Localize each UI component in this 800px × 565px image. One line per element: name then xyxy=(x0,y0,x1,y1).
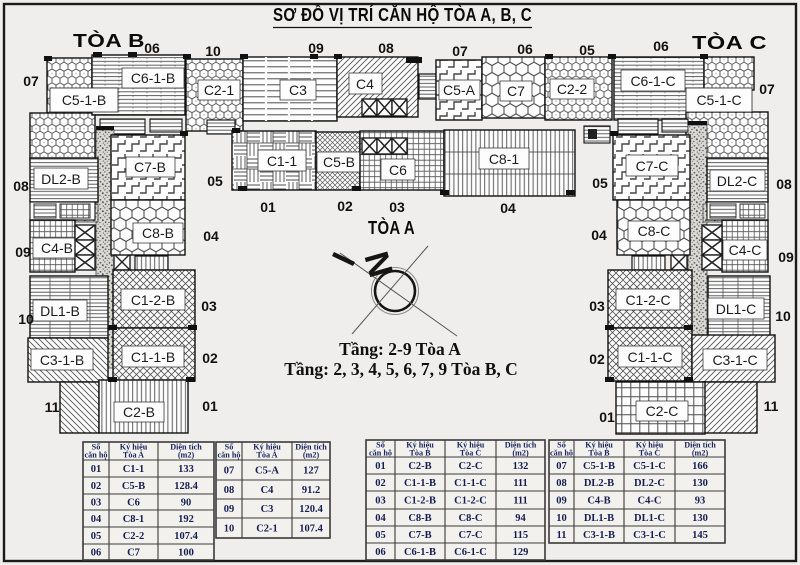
svg-text:C4-B: C4-B xyxy=(587,496,610,507)
svg-text:Tòa C: Tòa C xyxy=(639,449,661,458)
svg-text:Tầng: 2, 3, 4, 5, 6, 7, 9 Tòa: Tầng: 2, 3, 4, 5, 6, 7, 9 Tòa B, C xyxy=(284,359,518,379)
svg-text:C1-1-B: C1-1-B xyxy=(131,349,175,365)
svg-text:05: 05 xyxy=(579,42,595,58)
svg-text:C1-2-B: C1-2-B xyxy=(131,292,175,308)
svg-text:11: 11 xyxy=(557,530,567,541)
svg-text:128.4: 128.4 xyxy=(174,481,198,492)
svg-text:DL2-B: DL2-B xyxy=(584,478,614,489)
svg-text:C1-1-B: C1-1-B xyxy=(404,478,436,489)
svg-text:107.4: 107.4 xyxy=(299,524,323,535)
svg-text:DL1-C: DL1-C xyxy=(716,301,756,317)
svg-text:căn hộ: căn hộ xyxy=(369,449,392,458)
svg-text:07: 07 xyxy=(759,81,775,97)
svg-text:C4-C: C4-C xyxy=(638,496,662,507)
svg-text:C5-1-B: C5-1-B xyxy=(583,461,615,472)
svg-text:Tòa B: Tòa B xyxy=(588,449,610,458)
svg-text:C4: C4 xyxy=(356,76,374,92)
svg-text:DL1-B: DL1-B xyxy=(40,303,80,319)
svg-text:02: 02 xyxy=(91,481,102,492)
svg-text:C8-C: C8-C xyxy=(638,223,671,239)
svg-text:C5-1-C: C5-1-C xyxy=(633,461,666,472)
svg-text:C7: C7 xyxy=(507,83,525,99)
svg-text:Tòa C: Tòa C xyxy=(460,449,482,458)
svg-text:(m2): (m2) xyxy=(303,451,320,460)
svg-text:C2-C: C2-C xyxy=(459,461,483,472)
svg-text:C7-C: C7-C xyxy=(459,530,483,541)
svg-text:C2-1: C2-1 xyxy=(256,524,278,535)
svg-text:127: 127 xyxy=(303,466,319,477)
svg-text:130: 130 xyxy=(692,513,708,524)
svg-text:C1-2-C: C1-2-C xyxy=(625,292,670,308)
svg-text:C8-1: C8-1 xyxy=(489,151,520,167)
svg-text:C2-2: C2-2 xyxy=(123,531,145,542)
svg-text:04: 04 xyxy=(591,227,607,243)
svg-text:06: 06 xyxy=(653,38,669,54)
svg-text:C7-C: C7-C xyxy=(636,158,669,174)
svg-text:11: 11 xyxy=(45,399,60,415)
svg-text:C2-C: C2-C xyxy=(646,403,679,419)
svg-text:C6-1-C: C6-1-C xyxy=(630,73,675,89)
svg-text:02: 02 xyxy=(202,350,218,366)
svg-text:C3-1-B: C3-1-B xyxy=(40,352,84,368)
svg-text:C2-2: C2-2 xyxy=(557,81,588,97)
svg-text:C5-1-B: C5-1-B xyxy=(62,92,106,108)
svg-text:DL2-C: DL2-C xyxy=(634,478,665,489)
svg-text:căn hộ: căn hộ xyxy=(550,449,573,458)
svg-text:02: 02 xyxy=(375,478,386,489)
svg-text:C4: C4 xyxy=(261,485,275,496)
svg-text:09: 09 xyxy=(556,496,567,507)
svg-text:C8-1: C8-1 xyxy=(123,514,145,525)
svg-text:03: 03 xyxy=(375,496,386,507)
svg-text:132: 132 xyxy=(513,461,529,472)
svg-text:C5-B: C5-B xyxy=(122,481,145,492)
svg-text:DL1-B: DL1-B xyxy=(584,513,614,524)
svg-text:07: 07 xyxy=(556,461,567,472)
svg-text:SƠ ĐỒ VỊ TRÍ CĂN HỘ TÒA A, B,: SƠ ĐỒ VỊ TRÍ CĂN HỘ TÒA A, B, C xyxy=(273,4,532,25)
svg-text:09: 09 xyxy=(15,244,31,260)
svg-text:C1-2-B: C1-2-B xyxy=(404,496,436,507)
svg-text:133: 133 xyxy=(178,464,194,475)
svg-text:10: 10 xyxy=(775,308,791,324)
svg-text:10: 10 xyxy=(224,524,235,535)
svg-text:111: 111 xyxy=(513,478,528,489)
svg-text:C5-A: C5-A xyxy=(443,82,476,98)
svg-text:C8-C: C8-C xyxy=(459,513,483,524)
svg-text:06: 06 xyxy=(91,548,102,559)
svg-text:Tòa A: Tòa A xyxy=(123,451,144,460)
svg-text:TÒA A: TÒA A xyxy=(368,217,415,238)
svg-text:100: 100 xyxy=(178,548,194,559)
svg-text:107.4: 107.4 xyxy=(174,531,198,542)
svg-text:06: 06 xyxy=(517,41,533,57)
svg-text:10: 10 xyxy=(556,513,567,524)
svg-text:03: 03 xyxy=(589,298,605,314)
svg-text:C7-B: C7-B xyxy=(408,530,431,541)
svg-text:05: 05 xyxy=(207,173,223,189)
svg-text:03: 03 xyxy=(91,498,102,509)
svg-text:07: 07 xyxy=(452,43,468,59)
svg-text:03: 03 xyxy=(389,199,405,215)
svg-text:04: 04 xyxy=(91,514,102,525)
svg-text:C3-1-B: C3-1-B xyxy=(583,530,615,541)
svg-text:05: 05 xyxy=(592,175,608,191)
svg-text:11: 11 xyxy=(764,398,779,414)
svg-text:01: 01 xyxy=(260,199,276,215)
svg-text:07: 07 xyxy=(224,466,235,477)
svg-text:C5-1-C: C5-1-C xyxy=(696,92,741,108)
svg-text:04: 04 xyxy=(203,228,219,244)
svg-text:05: 05 xyxy=(91,531,102,542)
svg-text:(m2): (m2) xyxy=(692,449,709,458)
svg-text:10: 10 xyxy=(205,43,221,59)
svg-text:C6-1-B: C6-1-B xyxy=(404,547,436,558)
svg-text:06: 06 xyxy=(375,547,386,558)
svg-text:111: 111 xyxy=(513,496,528,507)
svg-text:90: 90 xyxy=(181,498,192,509)
svg-text:C8-B: C8-B xyxy=(408,513,431,524)
svg-text:08: 08 xyxy=(378,40,394,56)
svg-text:C3-1-C: C3-1-C xyxy=(633,530,666,541)
svg-text:06: 06 xyxy=(144,40,160,56)
svg-text:Tòa A: Tòa A xyxy=(256,451,277,460)
svg-text:C1-2-C: C1-2-C xyxy=(454,496,487,507)
svg-text:C1-1-C: C1-1-C xyxy=(627,349,672,365)
svg-text:166: 166 xyxy=(692,461,708,472)
svg-text:04: 04 xyxy=(375,513,386,524)
svg-text:căn hộ: căn hộ xyxy=(85,451,108,460)
svg-text:93: 93 xyxy=(695,496,706,507)
svg-text:09: 09 xyxy=(778,249,794,265)
svg-text:C6-1-C: C6-1-C xyxy=(454,547,487,558)
svg-text:08: 08 xyxy=(13,178,29,194)
svg-text:02: 02 xyxy=(337,198,353,214)
svg-text:(m2): (m2) xyxy=(512,449,529,458)
svg-text:08: 08 xyxy=(556,478,567,489)
svg-text:C7: C7 xyxy=(127,548,140,559)
svg-text:C3: C3 xyxy=(261,504,274,515)
svg-text:C2-B: C2-B xyxy=(408,461,431,472)
svg-text:(m2): (m2) xyxy=(178,451,195,460)
svg-text:DL2-C: DL2-C xyxy=(717,173,757,189)
svg-text:TÒA C: TÒA C xyxy=(692,32,767,53)
svg-text:Tòa B: Tòa B xyxy=(409,449,431,458)
svg-text:C3: C3 xyxy=(289,82,307,98)
svg-text:C1-1-C: C1-1-C xyxy=(454,478,487,489)
svg-text:115: 115 xyxy=(513,530,528,541)
svg-text:C1-1: C1-1 xyxy=(123,464,145,475)
svg-text:DL1-C: DL1-C xyxy=(634,513,665,524)
svg-text:09: 09 xyxy=(224,504,235,515)
svg-text:C6: C6 xyxy=(389,162,407,178)
svg-text:C2-B: C2-B xyxy=(123,404,155,420)
svg-text:C1-1: C1-1 xyxy=(267,153,298,169)
svg-text:căn hộ: căn hộ xyxy=(218,451,241,460)
svg-text:120.4: 120.4 xyxy=(299,504,323,515)
svg-text:08: 08 xyxy=(776,176,792,192)
svg-text:05: 05 xyxy=(375,530,386,541)
svg-text:192: 192 xyxy=(178,514,194,525)
svg-text:C6-1-B: C6-1-B xyxy=(131,70,175,86)
svg-text:01: 01 xyxy=(375,461,386,472)
svg-text:DL2-B: DL2-B xyxy=(41,171,81,187)
svg-text:08: 08 xyxy=(224,485,235,496)
svg-text:C4-C: C4-C xyxy=(729,242,762,258)
svg-text:01: 01 xyxy=(91,464,102,475)
svg-text:129: 129 xyxy=(513,547,529,558)
svg-text:C7-B: C7-B xyxy=(134,159,166,175)
svg-text:09: 09 xyxy=(308,40,324,56)
svg-text:C3-1-C: C3-1-C xyxy=(712,352,757,368)
svg-text:10: 10 xyxy=(18,311,34,327)
svg-text:C4-B: C4-B xyxy=(41,240,73,256)
svg-text:07: 07 xyxy=(23,73,39,89)
svg-text:Tầng: 2-9 Tòa A: Tầng: 2-9 Tòa A xyxy=(339,339,461,359)
svg-text:C2-1: C2-1 xyxy=(204,82,235,98)
svg-text:03: 03 xyxy=(201,298,217,314)
svg-text:C5-B: C5-B xyxy=(323,154,355,170)
svg-text:145: 145 xyxy=(692,530,708,541)
svg-text:91.2: 91.2 xyxy=(302,485,320,496)
svg-text:C5-A: C5-A xyxy=(255,466,279,477)
svg-text:02: 02 xyxy=(589,351,605,367)
svg-text:04: 04 xyxy=(500,200,516,216)
svg-text:01: 01 xyxy=(599,409,615,425)
svg-text:130: 130 xyxy=(692,478,708,489)
svg-text:C6: C6 xyxy=(127,498,140,509)
svg-text:C8-B: C8-B xyxy=(142,225,174,241)
svg-text:01: 01 xyxy=(202,398,218,414)
svg-text:TÒA B: TÒA B xyxy=(73,30,145,51)
svg-text:94: 94 xyxy=(515,513,526,524)
